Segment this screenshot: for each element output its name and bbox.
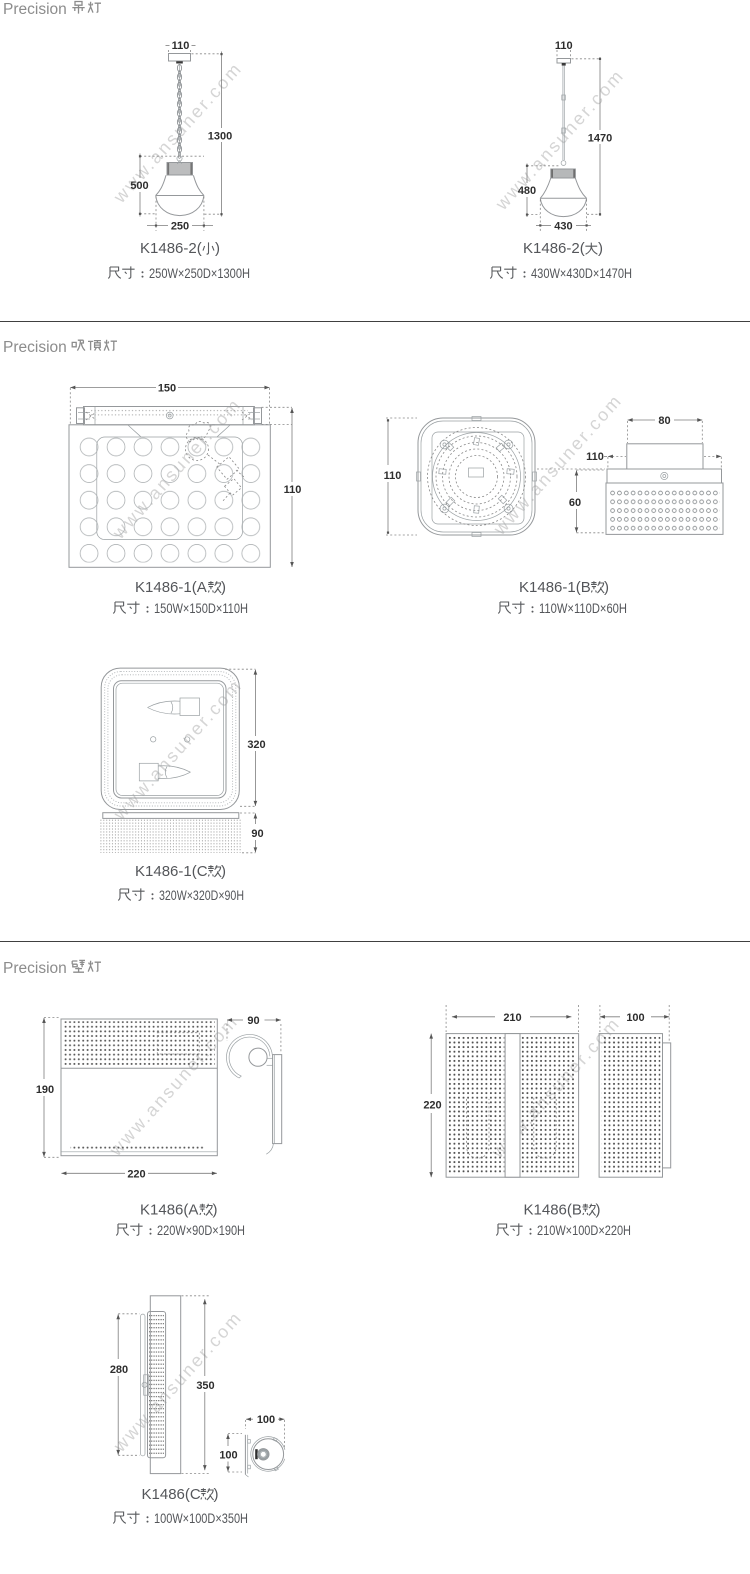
svg-text:110: 110 xyxy=(384,470,402,482)
svg-text:100: 100 xyxy=(626,1012,644,1024)
svg-text:1470: 1470 xyxy=(588,133,612,145)
svg-text:500: 500 xyxy=(130,180,148,192)
svg-text:): ) xyxy=(215,240,220,257)
svg-text:220W×90D×190H: 220W×90D×190H xyxy=(157,1222,245,1238)
svg-text:100: 100 xyxy=(219,1450,237,1462)
svg-text:): ) xyxy=(213,1202,218,1219)
svg-text:90: 90 xyxy=(251,828,263,840)
svg-text:): ) xyxy=(596,1202,601,1219)
svg-text:110: 110 xyxy=(284,484,302,496)
svg-text:): ) xyxy=(221,579,226,596)
svg-text:K1486(A: K1486(A xyxy=(140,1202,198,1219)
svg-text:320W×320D×90H: 320W×320D×90H xyxy=(159,887,244,903)
svg-text:480: 480 xyxy=(518,185,536,197)
svg-text:220: 220 xyxy=(423,1100,441,1112)
svg-text:250: 250 xyxy=(171,221,189,233)
svg-text:80: 80 xyxy=(658,415,670,427)
svg-text:430: 430 xyxy=(554,220,572,232)
svg-text:280: 280 xyxy=(110,1364,128,1376)
svg-text:350: 350 xyxy=(196,1380,214,1392)
svg-text:100W×100D×350H: 100W×100D×350H xyxy=(154,1510,248,1526)
svg-text:220: 220 xyxy=(127,1168,145,1180)
svg-text:110: 110 xyxy=(586,451,604,463)
svg-text:210W×100D×220H: 210W×100D×220H xyxy=(537,1222,631,1238)
svg-text:K1486-2(: K1486-2( xyxy=(523,240,585,257)
svg-text:110: 110 xyxy=(172,40,190,52)
svg-text:110W×110D×60H: 110W×110D×60H xyxy=(539,600,627,616)
svg-text:Precision: Precision xyxy=(3,1,67,18)
svg-text:150W×150D×110H: 150W×150D×110H xyxy=(154,600,248,616)
svg-text:K1486(C: K1486(C xyxy=(142,1486,201,1503)
svg-text:): ) xyxy=(214,1486,219,1503)
svg-text:90: 90 xyxy=(247,1015,259,1027)
svg-text:Precision: Precision xyxy=(3,339,67,356)
svg-text:210: 210 xyxy=(503,1012,521,1024)
svg-text:K1486-2(: K1486-2( xyxy=(140,240,202,257)
svg-text:320: 320 xyxy=(247,739,265,751)
svg-text:K1486-1(B: K1486-1(B xyxy=(519,579,591,596)
svg-text:): ) xyxy=(598,240,603,257)
svg-text:100: 100 xyxy=(257,1414,275,1426)
svg-text:1300: 1300 xyxy=(208,131,232,143)
svg-text:): ) xyxy=(221,863,226,880)
svg-text:250W×250D×1300H: 250W×250D×1300H xyxy=(149,265,250,281)
svg-text:150: 150 xyxy=(158,383,176,395)
svg-text:430W×430D×1470H: 430W×430D×1470H xyxy=(531,265,632,281)
svg-text:): ) xyxy=(604,579,609,596)
svg-text:K1486(B: K1486(B xyxy=(524,1202,582,1219)
svg-text:60: 60 xyxy=(569,497,581,509)
svg-text:Precision: Precision xyxy=(3,960,67,977)
svg-text:K1486-1(C: K1486-1(C xyxy=(135,863,208,880)
svg-text:190: 190 xyxy=(36,1084,54,1096)
svg-text:110: 110 xyxy=(555,40,573,52)
svg-text:K1486-1(A: K1486-1(A xyxy=(135,579,207,596)
